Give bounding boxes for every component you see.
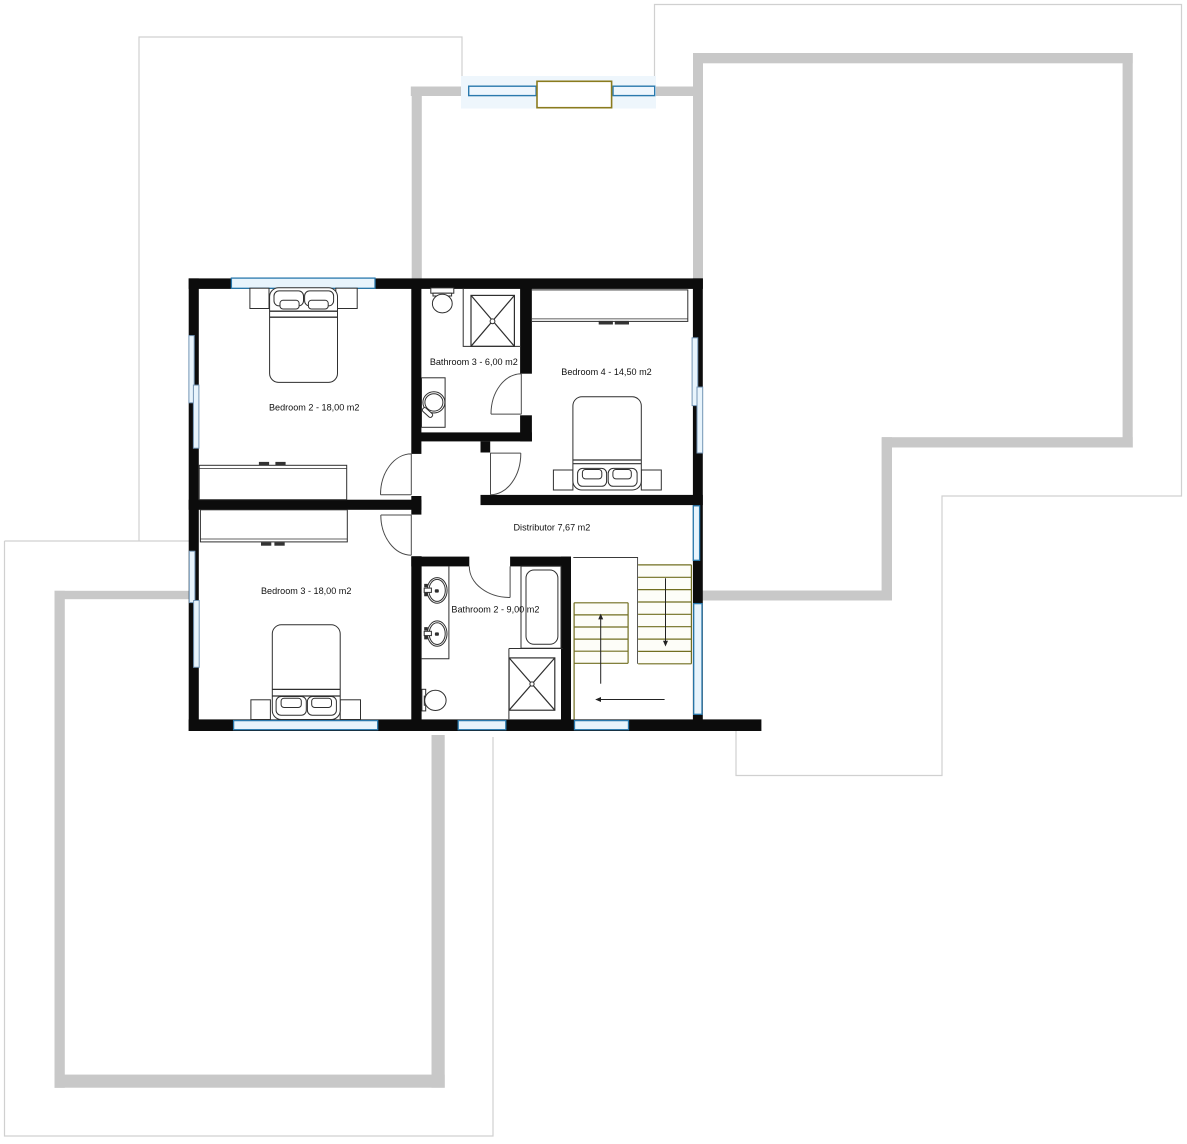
svg-text:Bedroom 4 - 14,50 m2: Bedroom 4 - 14,50 m2 — [561, 367, 651, 377]
svg-text:Bedroom 3 - 18,00 m2: Bedroom 3 - 18,00 m2 — [261, 586, 351, 596]
svg-text:Bathroom 3 - 6,00 m2: Bathroom 3 - 6,00 m2 — [430, 357, 518, 367]
svg-text:Bathroom 2 - 9,00 m2: Bathroom 2 - 9,00 m2 — [451, 605, 539, 615]
svg-text:Bedroom 2 - 18,00 m2: Bedroom 2 - 18,00 m2 — [269, 402, 359, 412]
svg-text:Distributor 7,67 m2: Distributor 7,67 m2 — [513, 523, 590, 533]
